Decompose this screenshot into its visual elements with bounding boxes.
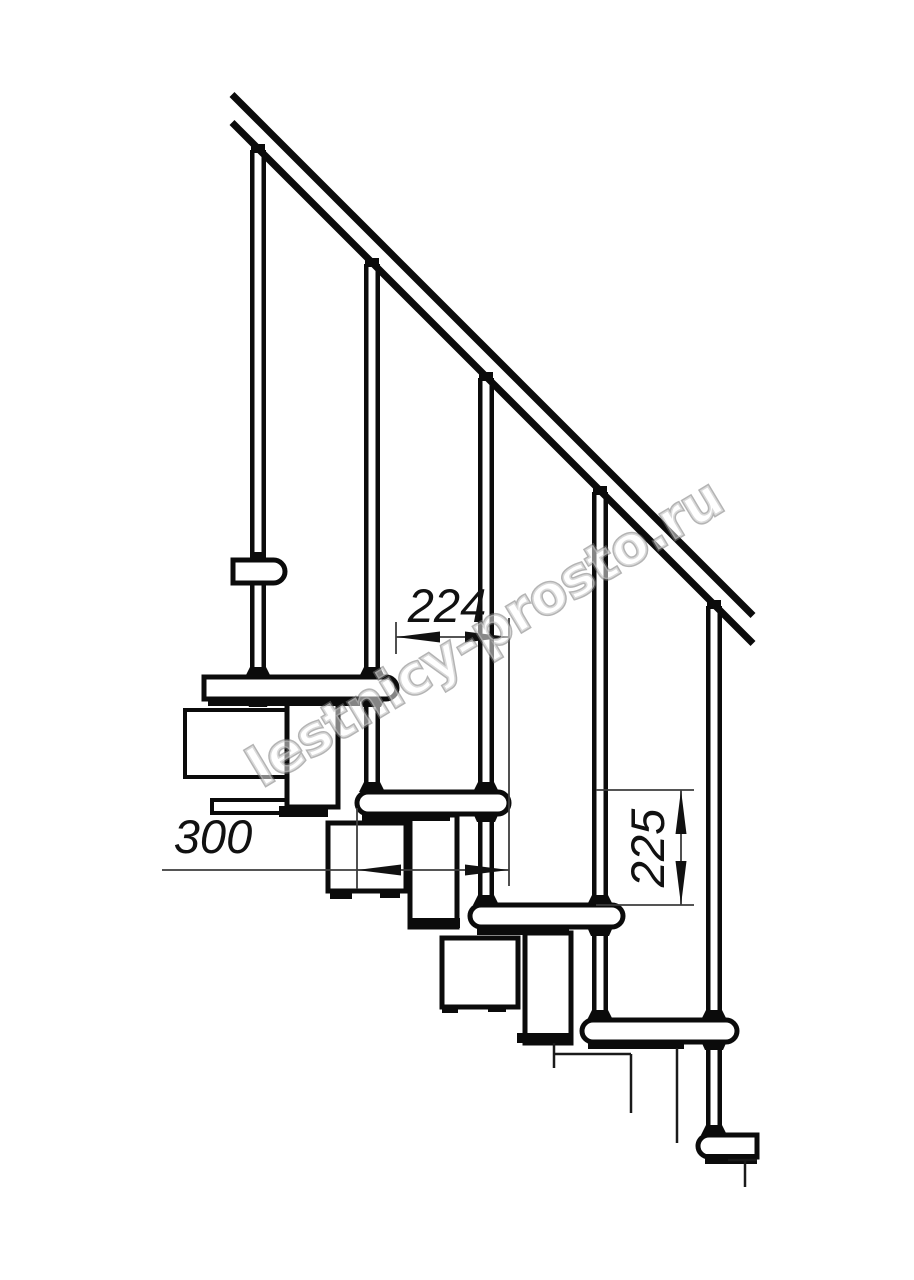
rod-foot: [359, 782, 385, 792]
tread: [233, 560, 285, 583]
dimension-arrow: [465, 865, 509, 876]
drawing-svg: 224300225lestnicy-prosto.ru: [0, 0, 914, 1280]
module-flange: [279, 806, 328, 817]
module-flange: [412, 918, 460, 928]
module-flange: [517, 1033, 570, 1043]
rail-connector: [707, 600, 721, 609]
rod-foot: [245, 667, 271, 677]
rod-nut: [473, 813, 499, 822]
dimension-225: 225: [596, 790, 694, 905]
rail-connector: [251, 144, 265, 153]
tread: [470, 905, 623, 927]
tread: [357, 792, 509, 814]
rod-nut: [587, 927, 613, 936]
rod-foot: [473, 782, 499, 792]
module-box: [525, 933, 571, 1043]
rail-connector: [251, 552, 265, 561]
rod-foot: [701, 1010, 727, 1020]
dimension-arrow: [676, 790, 687, 834]
under-tread-plate: [477, 927, 569, 935]
baluster-rod: [252, 150, 264, 677]
module-box: [410, 815, 457, 927]
under-tread-plate: [362, 813, 450, 821]
tread: [582, 1020, 737, 1042]
rail-connector: [365, 258, 379, 267]
rail-connector: [479, 372, 493, 381]
module-flange: [380, 890, 400, 898]
rod-foot: [587, 1010, 613, 1020]
module-box: [328, 823, 406, 891]
rod-foot: [473, 895, 499, 905]
dimension-arrow: [676, 861, 687, 905]
module-flange: [330, 890, 352, 899]
module-flange: [488, 1005, 506, 1012]
rail-connector: [593, 486, 607, 495]
dimension-300-label: 300: [174, 810, 252, 863]
tread: [698, 1135, 757, 1157]
staircase-technical-drawing: 224300225lestnicy-prosto.ru: [0, 0, 914, 1280]
under-tread-plate: [588, 1041, 684, 1049]
rod-foot: [587, 895, 613, 905]
rod-nut: [245, 698, 271, 707]
module-flange: [442, 1006, 458, 1013]
watermark-text: lestnicy-prosto.ru: [236, 466, 734, 800]
module-box: [442, 938, 518, 1007]
rod-foot: [701, 1125, 727, 1135]
dimension-225-label: 225: [621, 808, 674, 888]
rod-nut: [701, 1041, 727, 1050]
baluster-rod: [708, 606, 720, 1135]
cut-edges: [553, 1043, 757, 1187]
